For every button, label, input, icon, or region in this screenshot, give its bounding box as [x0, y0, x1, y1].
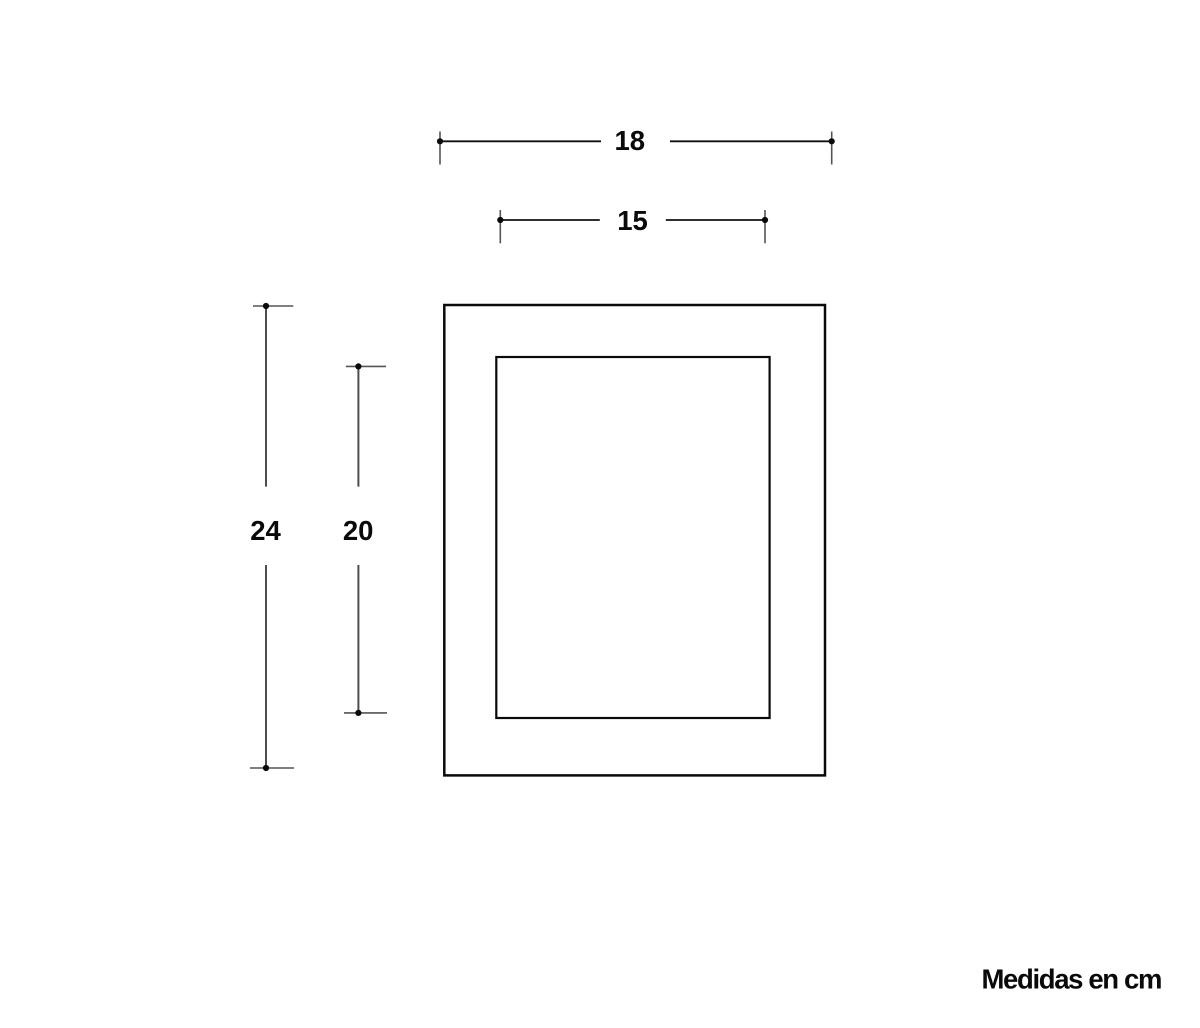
svg-text:15: 15 — [617, 205, 648, 236]
svg-text:Medidas en cm: Medidas en cm — [982, 963, 1162, 994]
svg-text:18: 18 — [615, 125, 646, 156]
svg-text:20: 20 — [343, 515, 374, 546]
svg-text:24: 24 — [250, 515, 281, 546]
